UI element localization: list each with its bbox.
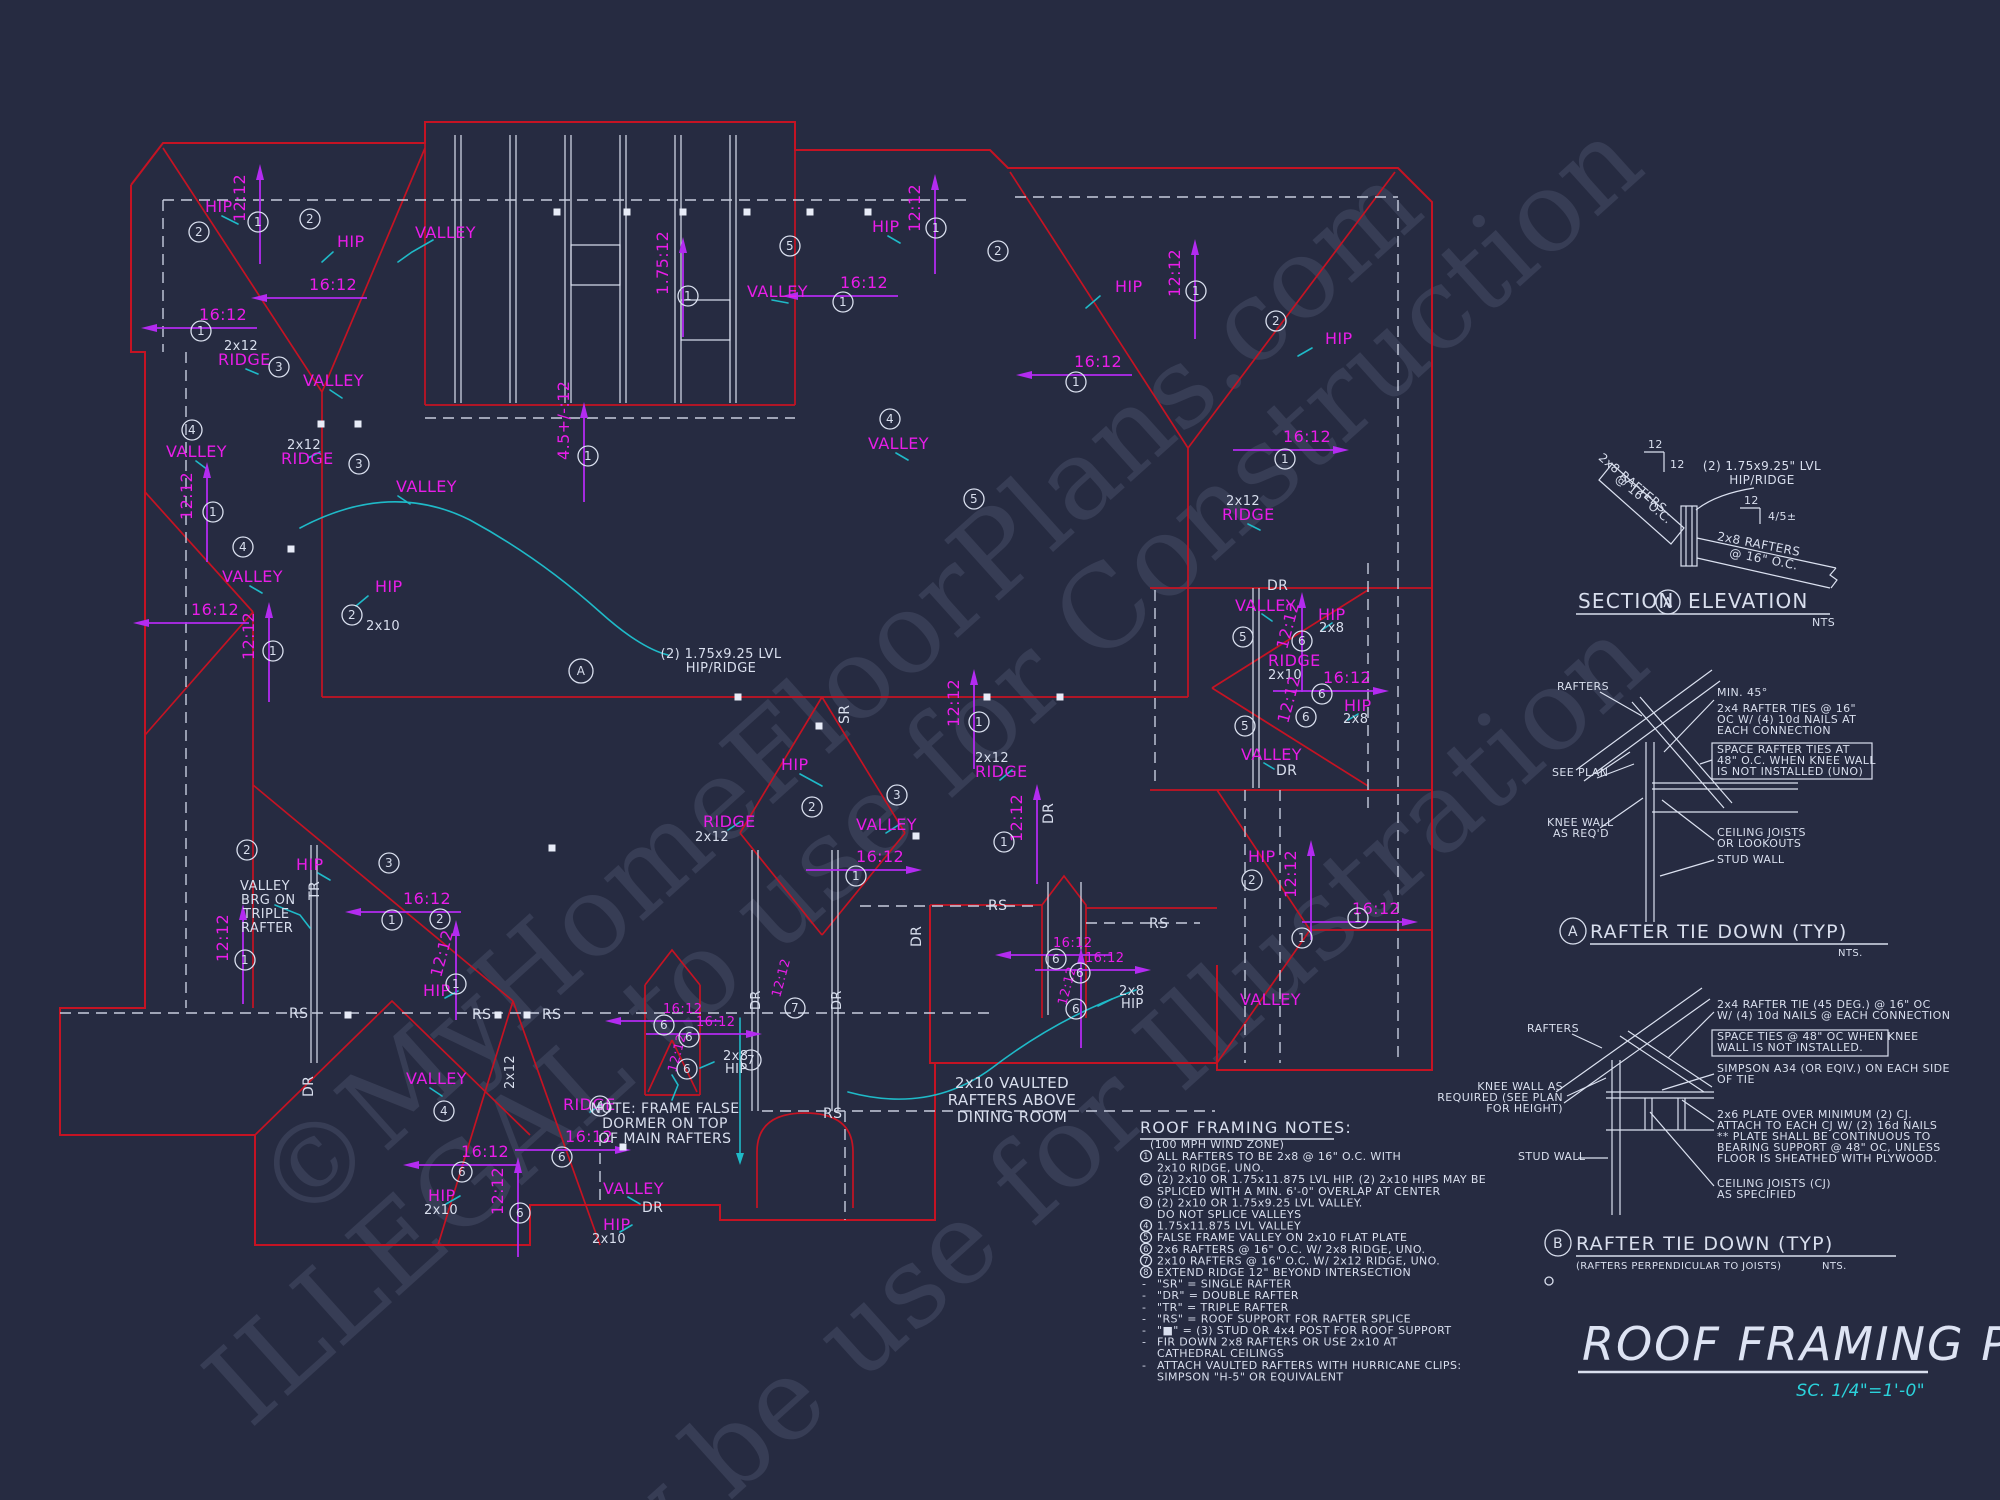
detail-a-bubble: A: [1568, 924, 1578, 940]
plan-label: DORMER ON TOP: [602, 1116, 728, 1132]
plan-label: TRIPLE: [242, 907, 290, 922]
post-marker: [288, 546, 295, 553]
plan-label: 12:12: [944, 679, 963, 727]
detail-b-title: RAFTER TIE DOWN (TYP): [1576, 1233, 1833, 1255]
plan-label: HIP: [872, 217, 900, 236]
plan-label: HIP: [1248, 847, 1276, 866]
slope-arrowhead: [141, 324, 157, 332]
slope-arrowhead: [679, 237, 687, 253]
post-marker: [495, 1012, 502, 1019]
detail-b-label: FLOOR IS SHEATHED WITH PLYWOOD.: [1717, 1152, 1937, 1165]
keynote-number: 6: [683, 1062, 691, 1076]
keynote-number: 3: [893, 788, 901, 802]
notes-list: 1ALL RAFTERS TO BE 2x8 @ 16" O.C. WITH2x…: [1141, 1150, 1487, 1383]
plan-label: DR: [642, 1200, 663, 1216]
keynote-number: 5: [786, 239, 794, 253]
detail-b-drawing: B RAFTER TIE DOWN (TYP) (RAFTERS PERPEND…: [1437, 988, 1950, 1285]
keynote-number: 6: [558, 1150, 566, 1164]
section-a-title-right: ELEVATION: [1688, 589, 1809, 613]
post-marker: [735, 694, 742, 701]
plan-label: RIDGE: [218, 350, 271, 369]
title-block: ROOF FRAMING PLAN SC. 1/4"=1'-0": [1578, 1317, 2000, 1401]
keynote-number: 6: [1076, 966, 1084, 980]
section-a-title-left: SECTION: [1578, 589, 1675, 613]
keynote-number: 4: [886, 412, 894, 426]
plan-label: 16:12: [1074, 352, 1122, 371]
detail-a-title: RAFTER TIE DOWN (TYP): [1590, 921, 1847, 943]
keynote-number: 2: [195, 225, 203, 239]
slope-arrowhead: [1016, 371, 1032, 379]
drawing-canvas: ©MyHomeFloorPlans.comILLEGAL to use for …: [0, 0, 2000, 1500]
detail-a-label: SEE PLAN: [1552, 766, 1608, 779]
plan-label: HIP: [375, 577, 403, 596]
post-marker: [807, 209, 814, 216]
plan-label: 16:12: [1283, 427, 1331, 446]
detail-b-nts: NTS.: [1822, 1261, 1847, 1272]
plan-label: NOTE: FRAME FALSE: [591, 1101, 740, 1117]
plan-label: 1.75:12: [653, 231, 672, 295]
keynote-number: 1: [1072, 375, 1080, 389]
slope-arrowhead: [345, 908, 361, 916]
plan-label: HIP: [725, 1062, 748, 1077]
keynote-number: 3: [355, 457, 363, 471]
plan-label: VALLEY: [240, 879, 290, 894]
plan-label: SR: [837, 705, 853, 724]
keynote-number: 5: [1239, 630, 1247, 644]
keynote-number: 6: [1298, 634, 1306, 648]
keynote-number: 1: [1298, 931, 1306, 945]
plan-label: DR: [830, 990, 845, 1010]
keynote-number: 6: [458, 1165, 466, 1179]
keynote-number: 1: [852, 869, 860, 883]
plan-label: VALLEY: [396, 477, 457, 496]
keynote-number: 1: [452, 977, 460, 991]
plan-label: HIP: [1325, 329, 1353, 348]
plan-label: RIDGE: [975, 762, 1028, 781]
detail-b-label: WALL IS NOT INSTALLED.: [1717, 1041, 1863, 1054]
keynote-number: 1: [269, 644, 277, 658]
plan-label: 12:12: [177, 472, 196, 520]
plan-label: RAFTERS ABOVE: [948, 1091, 1077, 1109]
plan-label: RIDGE: [281, 449, 334, 468]
post-marker: [816, 723, 823, 730]
keynote-number: 4: [188, 423, 196, 437]
detail-a-label: EACH CONNECTION: [1717, 724, 1831, 737]
keynote-number: 6: [1318, 687, 1326, 701]
section-a-label: 12: [1670, 458, 1685, 471]
post-marker: [624, 209, 631, 216]
plan-label: 4.5+/-:12: [554, 381, 573, 460]
plan-label: 2x8: [1319, 621, 1344, 636]
plan-label: 12:12: [239, 612, 258, 660]
keynote-number: 2: [1248, 873, 1256, 887]
keynote-number: 1: [932, 221, 940, 235]
plan-label: (2) 1.75x9.25 LVL: [660, 647, 781, 662]
note-bullet-dash: -: [1142, 1359, 1146, 1372]
plan-label: DINING ROOM: [957, 1108, 1068, 1126]
plan-label: DR: [1267, 578, 1288, 594]
plan-label: VALLEY: [406, 1069, 467, 1088]
note-line: SIMPSON "H-5" OR EQUIVALENT: [1157, 1370, 1343, 1383]
plan-label: VALLEY: [856, 815, 917, 834]
keynote-number: 3: [385, 856, 393, 870]
plan-label: 16:12: [191, 600, 239, 619]
note-bullet-dash: -: [1142, 1336, 1146, 1349]
notes-title: ROOF FRAMING NOTES:: [1140, 1118, 1352, 1137]
keynote-number: 7: [791, 1001, 799, 1015]
section-a-bubble: A: [1663, 596, 1672, 611]
detail-a-label: MIN. 45°: [1717, 686, 1768, 699]
slope-arrowhead: [931, 174, 939, 190]
sheet-scale: SC. 1/4"=1'-0": [1796, 1381, 1925, 1401]
note-bullet-number: 5: [1143, 1233, 1149, 1243]
detail-a-label: RAFTERS: [1557, 680, 1609, 693]
keynote-number: 1: [684, 289, 692, 303]
plan-label: RAFTER: [241, 921, 293, 936]
plan-label: 16:12: [696, 1015, 735, 1030]
section-a-label: 4/5±: [1768, 510, 1797, 523]
keynote-number: 5: [970, 492, 978, 506]
note-bullet-number: 1: [1143, 1152, 1149, 1162]
roof-framing-notes: ROOF FRAMING NOTES: (100 MPH WIND ZONE) …: [1140, 1118, 1486, 1383]
detail-b-label: AS SPECIFIED: [1717, 1188, 1796, 1201]
detail-b-labels: RAFTERS2x4 RAFTER TIE (45 DEG.) @ 16" OC…: [1437, 998, 1950, 1201]
section-a-label: 12: [1744, 494, 1759, 507]
plan-label: 16:12: [1053, 936, 1092, 951]
plan-label: 2x12: [695, 830, 729, 845]
plan-label: 16:12: [309, 275, 357, 294]
post-marker: [355, 421, 362, 428]
keynote-number: 3: [275, 360, 283, 374]
keynote-number: 2: [808, 800, 816, 814]
section-a-label: (2) 1.75x9.25" LVL: [1703, 459, 1821, 473]
keynote-number: 1: [1354, 911, 1362, 925]
plan-label: 12:12: [905, 184, 924, 232]
plan-label: DR: [749, 990, 764, 1010]
section-a-drawing: SECTION A ELEVATION NTS (2) 1.75x9.25" L…: [1576, 438, 1837, 629]
keynote-number: 1: [197, 324, 205, 338]
plan-label: 2x10: [592, 1232, 626, 1247]
post-marker: [549, 845, 556, 852]
plan-label: OF MAIN RAFTERS: [599, 1131, 732, 1147]
slope-arrowhead: [203, 462, 211, 478]
detail-b-label: FOR HEIGHT): [1486, 1102, 1563, 1115]
note-bullet-number: 4: [1143, 1222, 1149, 1232]
plan-label: VALLEY: [1240, 990, 1301, 1009]
plan-label: HIP: [205, 197, 233, 216]
plan-label: 2x10 VAULTED: [955, 1074, 1069, 1092]
plan-label: DR: [1041, 803, 1057, 824]
detail-a-nts: NTS.: [1838, 948, 1863, 959]
keynote-number: A: [577, 664, 586, 678]
note-bullet-number: 7: [1143, 1256, 1149, 1266]
plan-label: RIDGE: [1222, 505, 1275, 524]
keynote-number: 5: [1241, 719, 1249, 733]
plan-label: 12:12: [230, 174, 249, 222]
slope-arrowhead: [1191, 239, 1199, 255]
plan-label: 2x10: [424, 1203, 458, 1218]
slope-arrowhead: [995, 951, 1011, 959]
plan-label: RS: [823, 1106, 842, 1122]
plan-label: VALLEY: [747, 282, 808, 301]
keynote-number: 1: [584, 449, 592, 463]
keynote-number: 6: [660, 1018, 668, 1032]
plan-label: HIP/RIDGE: [686, 661, 757, 676]
keynote-number: 1: [209, 505, 217, 519]
keynote-number: 2: [994, 244, 1002, 258]
detail-a-label: OR LOOKOUTS: [1717, 837, 1801, 850]
post-marker: [318, 421, 325, 428]
keynote-number: 1: [975, 715, 983, 729]
plan-label: HIP: [781, 755, 809, 774]
plan-label: 16:12: [1085, 951, 1124, 966]
post-marker: [1057, 694, 1064, 701]
plan-label: 16:12: [403, 889, 451, 908]
slope-arrowhead: [256, 164, 264, 180]
keynote-number: 6: [1072, 1002, 1080, 1016]
plan-label: VALLEY: [603, 1179, 664, 1198]
slope-arrowhead: [1373, 687, 1389, 695]
plan-label: HIP: [1115, 277, 1143, 296]
plan-label: 16:12: [840, 273, 888, 292]
keynote-number: 4: [596, 1099, 604, 1113]
post-marker: [554, 209, 561, 216]
plan-label: VALLEY: [166, 442, 227, 461]
slope-arrowhead: [746, 1030, 762, 1038]
keynote-number: 7: [747, 1053, 755, 1067]
plan-label: VALLEY: [222, 567, 283, 586]
post-marker: [524, 1012, 531, 1019]
plan-label: 12:12: [213, 914, 232, 962]
post-marker: [680, 209, 687, 216]
section-a-nts: NTS: [1812, 616, 1835, 629]
post-marker: [345, 1012, 352, 1019]
plan-label: 2x8: [1343, 712, 1368, 727]
keynote-number: 2: [436, 912, 444, 926]
plan-label: 12:12: [1165, 249, 1184, 297]
detail-b-label: W/ (4) 10d NAILS @ EACH CONNECTION: [1717, 1009, 1950, 1022]
keynote-number: 6: [516, 1206, 524, 1220]
plan-label: 12:12: [488, 1167, 507, 1215]
keynote-number: 1: [241, 953, 249, 967]
note-bullet-number: 3: [1143, 1198, 1149, 1208]
plan-label: 2x12: [503, 1055, 518, 1089]
plan-label: RS: [472, 1007, 491, 1023]
plan-label: VALLEY: [415, 223, 476, 242]
keynote-number: 2: [243, 843, 251, 857]
section-a-label: 12: [1648, 438, 1663, 451]
plan-label: 12:12: [1007, 794, 1026, 842]
keynote-number: 1: [254, 215, 262, 229]
plan-label: HIP: [296, 855, 324, 874]
keynote-number: 1: [839, 295, 847, 309]
keynote-number: 1: [388, 913, 396, 927]
keynote-number: 1: [1000, 835, 1008, 849]
detail-b-bubble: B: [1553, 1236, 1563, 1252]
slope-arrowhead: [265, 602, 273, 618]
plan-label: RIDGE: [703, 812, 756, 831]
keynote-number: 6: [1052, 952, 1060, 966]
plan-label: HIP: [1121, 997, 1144, 1012]
plan-label: 16:12: [1323, 668, 1371, 687]
detail-a-label: STUD WALL: [1717, 853, 1785, 866]
plan-label: 2x10: [366, 619, 400, 634]
plan-label: RS: [542, 1007, 561, 1023]
post-marker: [984, 694, 991, 701]
plan-label: 12:12: [1281, 850, 1300, 898]
keynote-number: 2: [348, 608, 356, 622]
plan-label: RS: [289, 1006, 308, 1022]
post-marker: [865, 209, 872, 216]
note-bullet-number: 8: [1143, 1268, 1149, 1278]
watermark-text: ©MyHomeFloorPlans.comILLEGAL to use for …: [181, 94, 1672, 1500]
plan-label: 16:12: [856, 847, 904, 866]
section-a-labels: (2) 1.75x9.25" LVLHIP/RIDGE2x8 RAFTERS@ …: [1596, 438, 1821, 573]
detail-b-label: RAFTERS: [1527, 1022, 1579, 1035]
slope-arrowhead: [1033, 784, 1041, 800]
roof-framing-plan-sheet: ©MyHomeFloorPlans.comILLEGAL to use for …: [0, 0, 2000, 1500]
section-a-label: HIP/RIDGE: [1729, 473, 1794, 487]
plan-label: DR: [1276, 763, 1297, 779]
keynote-number: 1: [1192, 284, 1200, 298]
plan-label: BRG ON: [241, 893, 296, 908]
note-bullet-number: 2: [1143, 1175, 1149, 1185]
keynote-number: 2: [306, 212, 314, 226]
plan-label: RS: [988, 898, 1007, 914]
slope-arrowhead: [133, 619, 149, 627]
section-a-label: @ 16" O.C.: [1612, 471, 1674, 526]
slope-arrowhead: [1135, 966, 1151, 974]
sheet-title: ROOF FRAMING PLAN: [1582, 1317, 2000, 1371]
plan-label: 16:12: [461, 1142, 509, 1161]
detail-a-label: IS NOT INSTALLED (UNO): [1717, 765, 1863, 778]
detail-a-label: AS REQ'D: [1553, 827, 1609, 840]
detail-b-label: STUD WALL: [1518, 1150, 1586, 1163]
keynote-number: 2: [1272, 314, 1280, 328]
plan-label: VALLEY: [1241, 745, 1302, 764]
note-bullet-number: 6: [1143, 1245, 1149, 1255]
plan-label: VALLEY: [868, 434, 929, 453]
plan-label: TR: [307, 881, 323, 901]
detail-b-subtitle: (RAFTERS PERPENDICULAR TO JOISTS): [1576, 1261, 1781, 1272]
plan-label: RS: [1149, 916, 1168, 932]
keynote-number: 4: [239, 540, 247, 554]
keynote-number: 6: [1302, 710, 1310, 724]
keynote-number: 6: [685, 1030, 693, 1044]
plan-label: DR: [909, 926, 925, 947]
post-marker: [744, 209, 751, 216]
detail-b-label: OF TIE: [1717, 1073, 1755, 1086]
keynote-number: 4: [440, 1104, 448, 1118]
plan-label: VALLEY: [303, 371, 364, 390]
plan-label: HIP: [337, 232, 365, 251]
plan-label: 16:12: [199, 305, 247, 324]
keynote-number: 1: [1281, 452, 1289, 466]
plan-label: DR: [301, 1076, 317, 1097]
